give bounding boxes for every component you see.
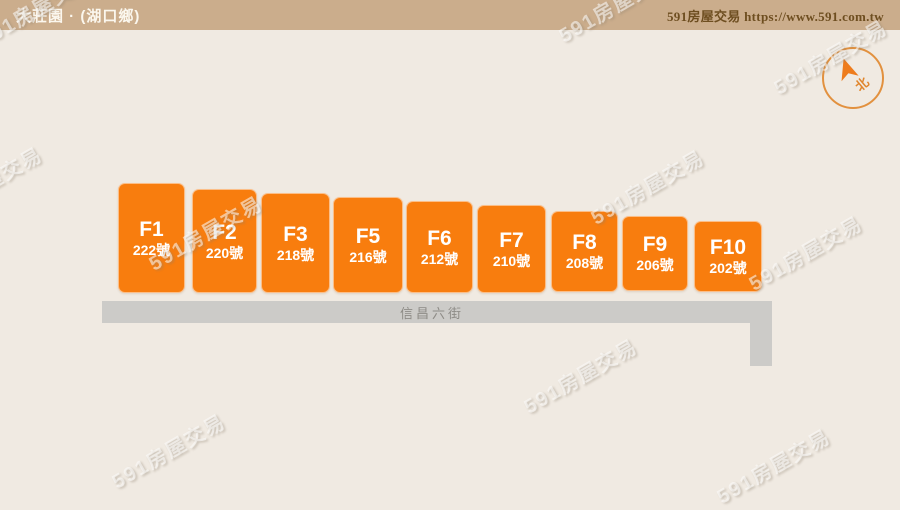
building-id-label: F5 <box>356 225 381 248</box>
building-address-label: 212號 <box>421 251 458 268</box>
building-id-label: F2 <box>212 221 237 244</box>
building-id-label: F1 <box>139 218 164 241</box>
building-id-label: F6 <box>427 227 452 250</box>
road-vertical <box>750 301 772 366</box>
building-address-label: 202號 <box>709 260 746 277</box>
header-bar: 大莊園 · (湖口鄉) 591房屋交易 https://www.591.com.… <box>0 0 900 30</box>
building-f6[interactable]: F6 212號 <box>406 201 473 293</box>
watermark-text: 591房屋交易 <box>106 406 231 495</box>
site-plan-stage: 大莊園 · (湖口鄉) 591房屋交易 https://www.591.com.… <box>0 0 900 510</box>
building-address-label: 218號 <box>277 247 314 264</box>
building-f5[interactable]: F5 216號 <box>333 197 403 293</box>
building-address-label: 208號 <box>566 255 603 272</box>
building-address-label: 210號 <box>493 253 530 270</box>
building-f9[interactable]: F9 206號 <box>622 216 688 291</box>
brand-text: 591房屋交易 https://www.591.com.tw <box>667 6 884 25</box>
building-id-label: F10 <box>710 236 746 259</box>
watermark-text: 591房屋交易 <box>518 331 643 420</box>
building-address-label: 216號 <box>349 249 386 266</box>
road-name-label: 信昌六街 <box>400 303 464 322</box>
building-address-label: 220號 <box>206 245 243 262</box>
watermark-text: 591房屋交易 <box>0 139 47 228</box>
compass: 北 <box>822 47 884 109</box>
building-f1[interactable]: F1 222號 <box>118 183 185 293</box>
page-title: 大莊園 · (湖口鄉) <box>16 5 140 26</box>
watermark-text: 591房屋交易 <box>711 421 836 510</box>
building-f10[interactable]: F10 202號 <box>694 221 762 292</box>
building-f7[interactable]: F7 210號 <box>477 205 546 293</box>
building-id-label: F8 <box>572 231 597 254</box>
building-id-label: F3 <box>283 223 308 246</box>
building-address-label: 222號 <box>133 242 170 259</box>
building-f2[interactable]: F2 220號 <box>192 189 257 293</box>
building-id-label: F7 <box>499 229 524 252</box>
building-id-label: F9 <box>643 233 668 256</box>
building-f8[interactable]: F8 208號 <box>551 211 618 292</box>
building-f3[interactable]: F3 218號 <box>261 193 330 293</box>
building-address-label: 206號 <box>636 257 673 274</box>
